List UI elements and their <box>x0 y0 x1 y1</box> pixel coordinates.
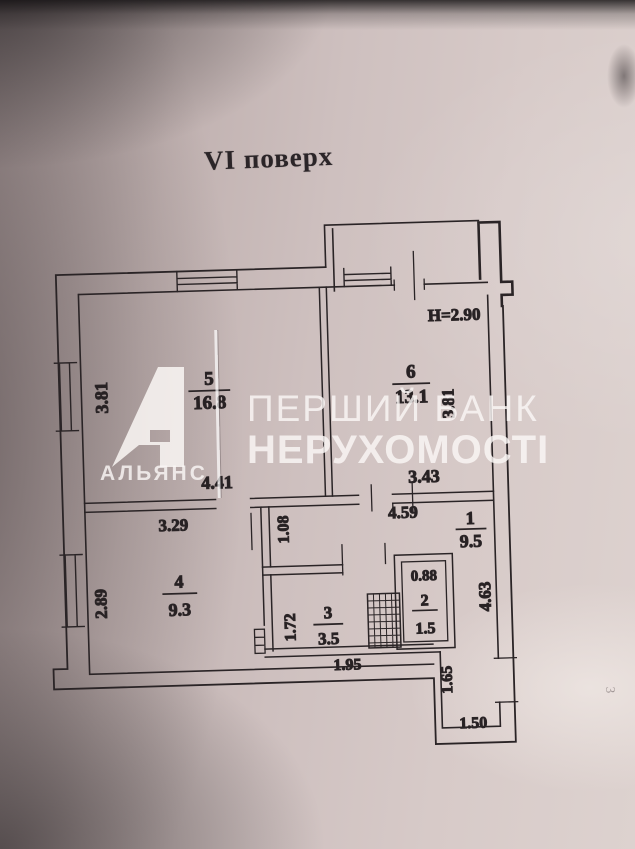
watermark-brand-line2: НЕРУХОМОСТІ <box>247 428 549 473</box>
floor-plan-photo: VI поверх <box>0 0 635 849</box>
watermark-brand-line1: ПЕРШИЙ БАНК <box>247 388 539 430</box>
watermark-alliance-label: АЛЬЯНС <box>100 462 208 486</box>
page-number-mark: 3 <box>602 686 618 693</box>
